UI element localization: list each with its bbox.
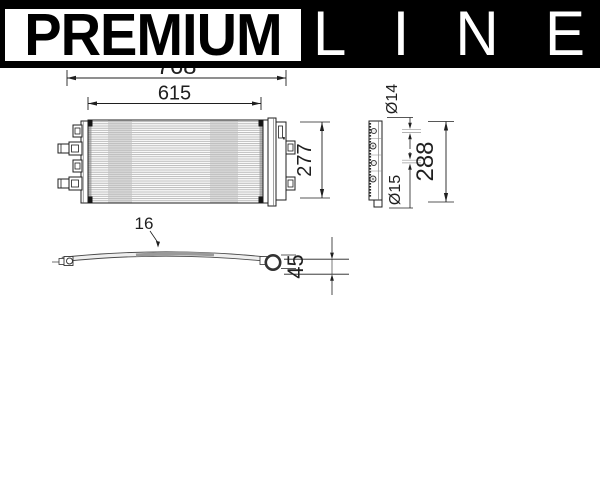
strip-center-section	[136, 254, 214, 256]
condenser-technical-drawing: 768 615 277 Ø14	[0, 0, 600, 472]
dim-label-d14: Ø14	[384, 84, 401, 114]
drawing-area: 768 615 277 Ø14	[0, 0, 600, 472]
dim-label-d15: Ø15	[387, 175, 404, 205]
side-port-1	[371, 128, 376, 133]
shade-band-right	[210, 121, 238, 203]
premium-line-banner: PREMIUM L I N E	[0, 0, 600, 68]
right-mounting-bracket	[276, 122, 295, 200]
dim-label-16: 16	[135, 214, 154, 233]
premium-label: PREMIUM	[24, 5, 281, 64]
right-header-tank	[263, 120, 268, 203]
line-letter-l: L	[313, 3, 346, 66]
line-letter-i: I	[393, 3, 410, 66]
left-fittings	[58, 125, 82, 190]
shade-band-left	[108, 121, 132, 203]
dim-label-615: 615	[158, 83, 191, 105]
dim-label-45: 45	[283, 254, 308, 278]
dimension-core-width: 615	[88, 83, 261, 111]
right-end-ring	[266, 255, 280, 269]
dimension-front-height: 277	[294, 122, 330, 198]
side-view-foot	[374, 200, 382, 207]
dim-label-277: 277	[294, 143, 316, 176]
premium-label-box: PREMIUM	[5, 9, 301, 61]
dimension-thickness: 16	[135, 214, 160, 248]
dimension-side-height: 288	[412, 122, 454, 203]
side-port-3	[371, 160, 376, 165]
dim-label-288: 288	[412, 141, 439, 181]
dimension-bow-depth: 45	[283, 237, 349, 295]
receiver-drier	[268, 118, 276, 206]
line-letter-n: N	[455, 3, 498, 66]
left-end-fitting	[67, 258, 73, 264]
side-view	[369, 121, 382, 207]
front-view	[58, 118, 295, 206]
line-label: L I N E	[313, 0, 585, 68]
top-view	[52, 254, 296, 270]
line-letter-e: E	[545, 3, 585, 66]
